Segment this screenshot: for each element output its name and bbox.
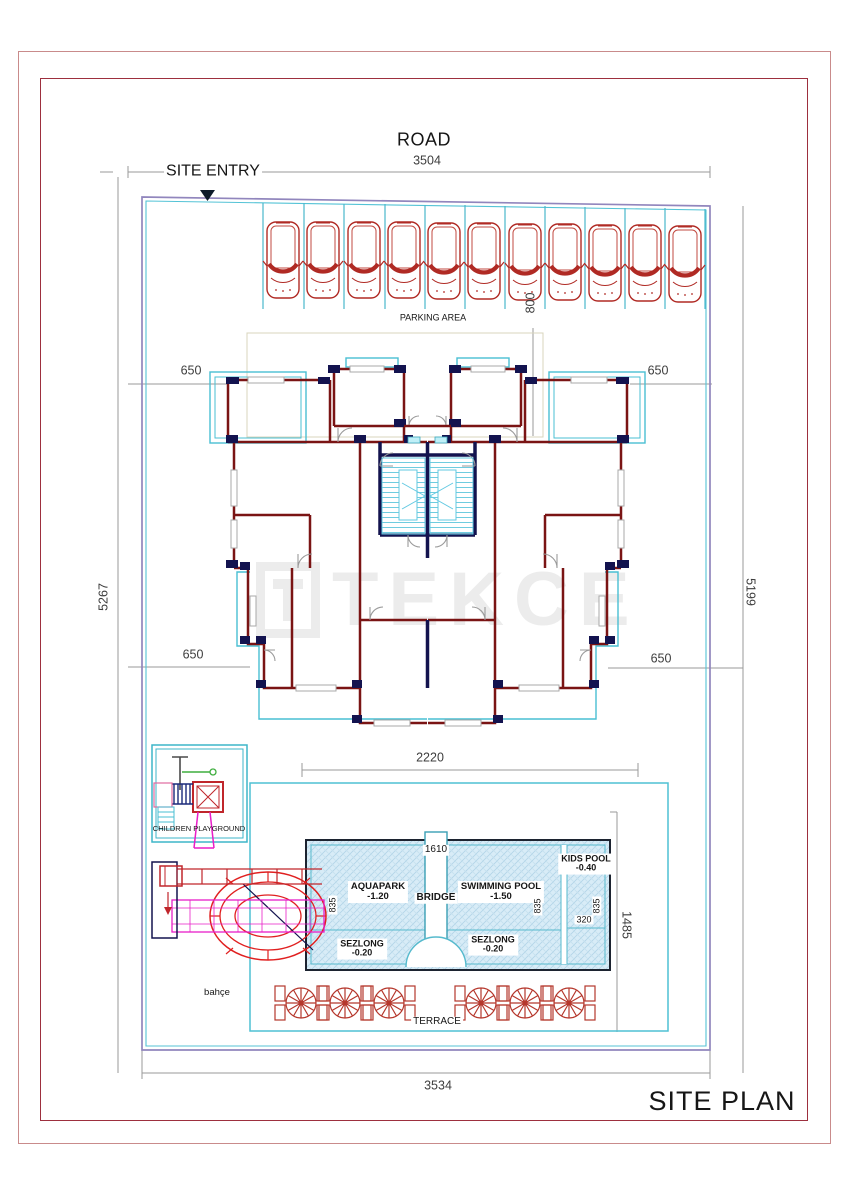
dim-left-depth: 5267 <box>97 583 110 611</box>
dim-bottom-width: 3534 <box>424 1079 452 1092</box>
dim-right-depth: 5199 <box>743 578 756 606</box>
dim-parking-depth: 800 <box>524 293 537 314</box>
dim-offset-bottom-left: 650 <box>183 648 204 661</box>
terrace-label: TERRACE <box>411 1017 463 1028</box>
swimming-pool-label: SWIMMING POOL -1.50 <box>458 881 544 903</box>
dim-aquapark-width: 835 <box>328 895 337 914</box>
dim-offset-bottom-right: 650 <box>651 652 672 665</box>
page-title: SITE PLAN <box>648 1087 795 1115</box>
kids-pool-level: -0.40 <box>576 864 597 873</box>
parked-cars <box>263 222 705 302</box>
dim-pool-width: 835 <box>533 896 542 915</box>
site-plan-drawing: TEKCE <box>0 0 848 1200</box>
kids-pool-label: KIDS POOL -0.40 <box>558 854 614 875</box>
site-entry-label: SITE ENTRY <box>164 164 262 181</box>
dim-kids-pool-outer: 835 <box>592 896 601 915</box>
aquapark-slide <box>152 862 326 960</box>
sezlong-right-level: -0.20 <box>483 945 504 954</box>
dim-top-width: 3504 <box>413 154 441 167</box>
parking-area-label: PARKING AREA <box>400 313 466 322</box>
dim-bridge-top: 1610 <box>423 845 449 856</box>
road-label: ROAD <box>397 131 451 150</box>
dim-offset-top-left: 650 <box>181 364 202 377</box>
children-playground-label: CHILDREN PLAYGROUND <box>153 825 245 833</box>
building-plan <box>210 358 645 726</box>
bridge-label: BRIDGE <box>415 893 458 904</box>
aquapark-label: AQUAPARK -1.20 <box>348 881 408 903</box>
sezlong-left-label: SEZLONG -0.20 <box>337 939 387 960</box>
garden-label: bahçe <box>204 988 230 998</box>
sezlong-right-label: SEZLONG -0.20 <box>468 935 518 956</box>
dim-kids-pool-inner: 320 <box>574 915 593 924</box>
dim-building-width: 2220 <box>416 751 444 764</box>
dim-offset-top-right: 650 <box>648 364 669 377</box>
aquapark-level: -1.20 <box>367 892 389 902</box>
site-entry-arrow-icon <box>200 190 215 201</box>
swimming-pool-level: -1.50 <box>490 892 512 902</box>
dim-pool-area-depth: 1485 <box>619 911 632 939</box>
sezlong-left-level: -0.20 <box>352 949 373 958</box>
